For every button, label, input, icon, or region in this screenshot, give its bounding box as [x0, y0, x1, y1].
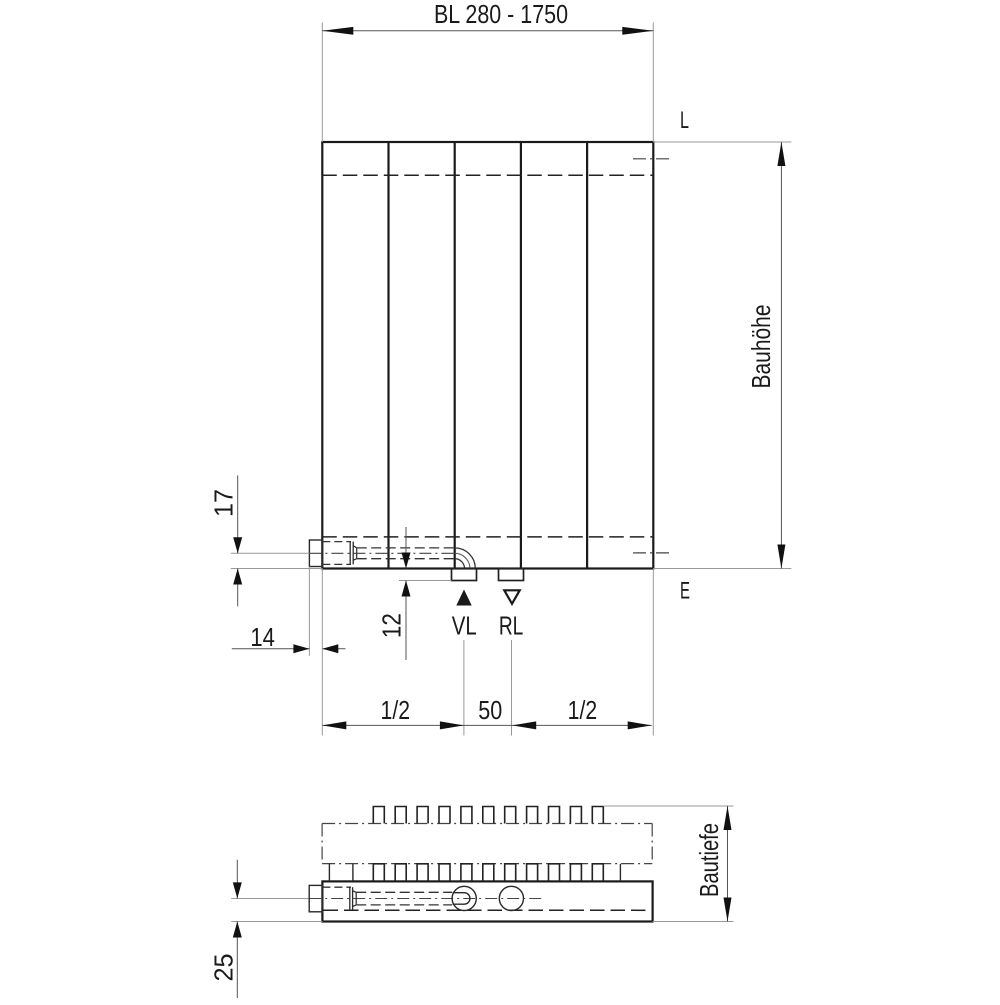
- svg-text:25: 25: [208, 954, 238, 982]
- svg-text:50: 50: [478, 695, 502, 725]
- svg-text:Bautiefe: Bautiefe: [694, 823, 724, 897]
- svg-text:14: 14: [250, 622, 275, 652]
- svg-text:VL: VL: [452, 611, 477, 641]
- svg-text:E: E: [680, 577, 690, 604]
- svg-text:BL 280 - 1750: BL 280 - 1750: [434, 0, 568, 29]
- svg-text:L: L: [680, 107, 689, 134]
- svg-text:RL: RL: [499, 611, 524, 641]
- svg-text:Bauhöhe: Bauhöhe: [746, 305, 776, 389]
- svg-text:1/2: 1/2: [381, 695, 411, 725]
- svg-text:12: 12: [377, 613, 407, 638]
- svg-text:17: 17: [209, 489, 239, 517]
- svg-text:1/2: 1/2: [568, 695, 598, 725]
